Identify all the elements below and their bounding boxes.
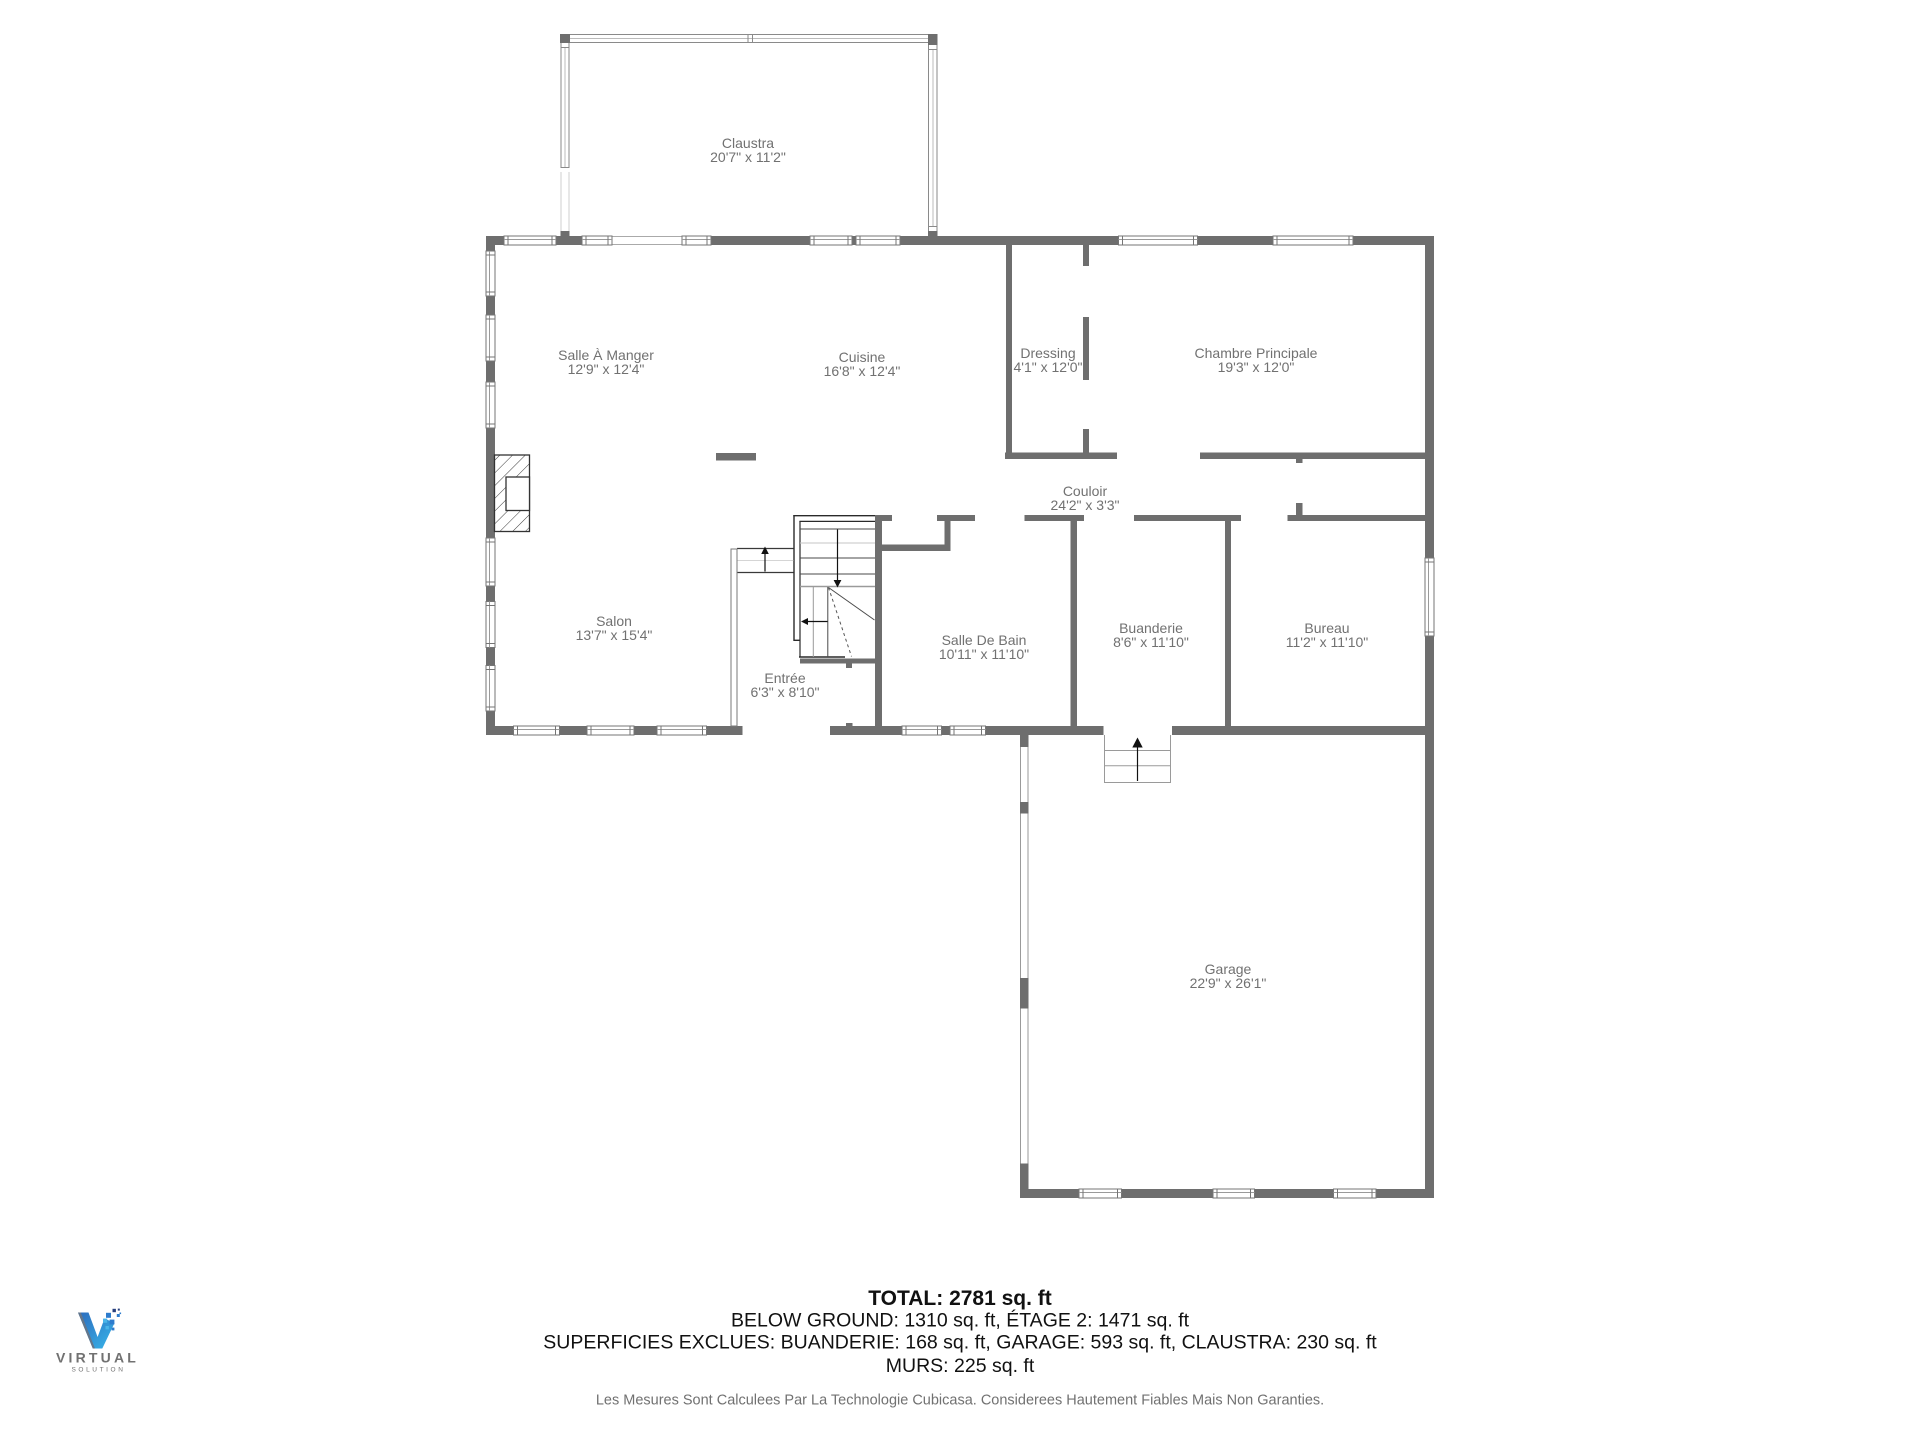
svg-text:22'9" x 26'1": 22'9" x 26'1"	[1190, 975, 1267, 991]
svg-text:4'1" x 12'0": 4'1" x 12'0"	[1014, 359, 1083, 375]
svg-text:19'3" x 12'0": 19'3" x 12'0"	[1218, 359, 1295, 375]
svg-text:8'6" x 11'10": 8'6" x 11'10"	[1113, 634, 1189, 650]
svg-text:11'2" x 11'10": 11'2" x 11'10"	[1286, 634, 1369, 650]
svg-text:MURS: 225 sq. ft: MURS: 225 sq. ft	[886, 1355, 1035, 1377]
svg-text:13'7" x 15'4": 13'7" x 15'4"	[576, 627, 653, 643]
svg-text:BELOW GROUND: 1310 sq. ft, ÉTA: BELOW GROUND: 1310 sq. ft, ÉTAGE 2: 1471…	[731, 1309, 1190, 1332]
svg-text:20'7" x 11'2": 20'7" x 11'2"	[710, 149, 786, 165]
svg-text:TOTAL: 2781 sq. ft: TOTAL: 2781 sq. ft	[868, 1287, 1052, 1310]
svg-text:16'8" x 12'4": 16'8" x 12'4"	[824, 363, 901, 379]
svg-text:24'2" x 3'3": 24'2" x 3'3"	[1051, 497, 1120, 513]
svg-text:6'3" x 8'10": 6'3" x 8'10"	[751, 684, 820, 700]
svg-text:10'11" x 11'10": 10'11" x 11'10"	[939, 646, 1029, 662]
svg-text:SOLUTION: SOLUTION	[71, 1367, 125, 1374]
svg-text:12'9" x 12'4": 12'9" x 12'4"	[568, 361, 645, 377]
svg-text:Les Mesures Sont Calculees Par: Les Mesures Sont Calculees Par La Techno…	[596, 1393, 1324, 1409]
svg-text:SUPERFICIES EXCLUES: BUANDERIE: SUPERFICIES EXCLUES: BUANDERIE: 168 sq. …	[543, 1332, 1377, 1354]
svg-text:VIRTUAL: VIRTUAL	[56, 1350, 139, 1366]
